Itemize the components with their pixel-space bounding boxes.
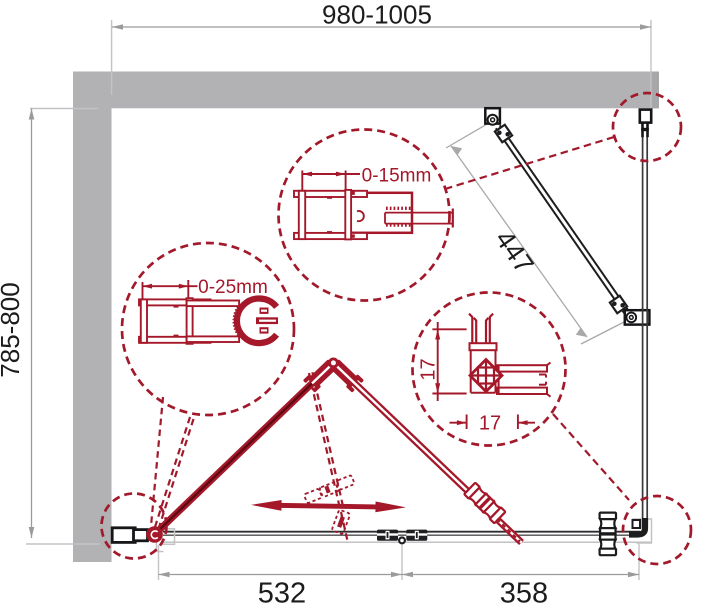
svg-text:0-25mm: 0-25mm [198, 277, 268, 298]
svg-text:532: 532 [258, 578, 306, 609]
svg-text:0-15mm: 0-15mm [362, 166, 432, 187]
svg-text:980-1005: 980-1005 [322, 0, 432, 30]
svg-text:358: 358 [500, 578, 548, 609]
svg-text:785-800: 785-800 [0, 282, 25, 377]
svg-text:17: 17 [418, 358, 440, 380]
svg-text:17: 17 [479, 413, 501, 435]
